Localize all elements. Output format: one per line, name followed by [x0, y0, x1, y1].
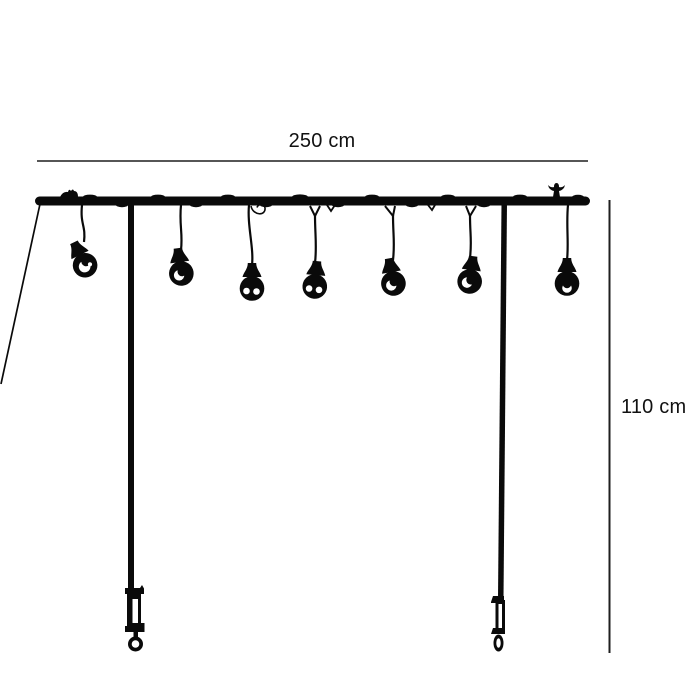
bulb-cord	[249, 205, 253, 265]
anchor-cord	[1, 204, 40, 384]
bulb-cord-fork	[310, 206, 320, 216]
right-table-clamp	[491, 596, 505, 652]
left-pole	[128, 203, 134, 590]
light-bulb-icon	[63, 237, 102, 282]
bulb-cord-fork	[385, 206, 395, 216]
product-dimension-diagram: 250 cm 110 cm	[0, 0, 700, 700]
light-bulb-icon	[240, 263, 265, 301]
bulb-cord	[567, 205, 568, 260]
bulb-cord	[470, 215, 471, 258]
left-table-clamp	[125, 585, 145, 652]
width-dimension-label: 250 cm	[252, 130, 392, 153]
light-bulb-icon	[301, 260, 329, 300]
right-cord-knot-icon	[548, 183, 565, 197]
bulb-cord	[180, 205, 181, 250]
light-bulb-icon	[377, 256, 408, 297]
height-dimension-label: 110 cm	[621, 396, 686, 419]
bulb-cord	[393, 215, 394, 260]
right-pole	[498, 203, 507, 598]
light-bulb-icon	[166, 247, 196, 288]
light-bulb-icon	[555, 258, 580, 296]
bulb-cord	[82, 205, 85, 242]
string-lights-silhouette	[0, 0, 700, 700]
light-bulb-icon	[456, 255, 486, 296]
bulb-cord-fork	[466, 206, 476, 216]
bulb-cord	[315, 215, 316, 263]
left-cord-knot-icon	[60, 190, 78, 198]
